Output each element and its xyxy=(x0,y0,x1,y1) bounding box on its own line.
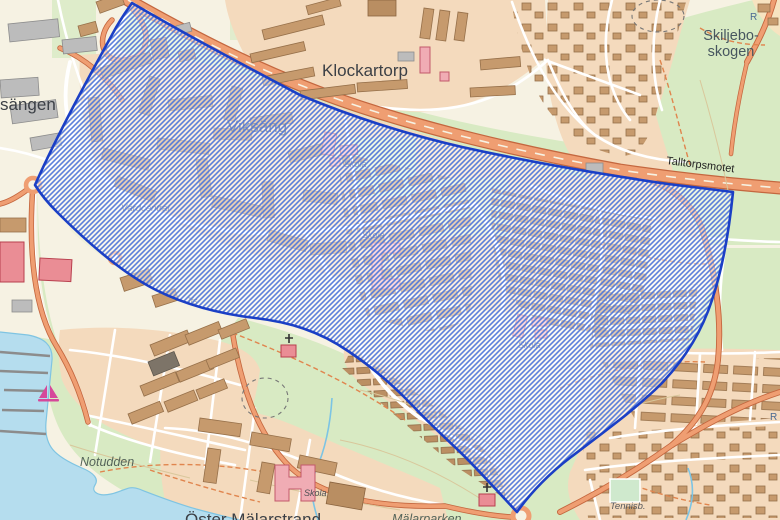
label-oster-malarstrand: Öster Mälarstrand xyxy=(185,510,321,520)
label-skiljeboskogen-line1: Skiljebo- xyxy=(703,28,759,44)
tennis-court xyxy=(610,479,640,502)
label-malarparken: Mälarparken xyxy=(392,512,462,520)
map-canvas[interactable]: Viksäng Vårdcentral Skola Skola Skola Jf… xyxy=(0,0,780,520)
label-tennis: Tennisb. xyxy=(610,501,646,512)
label-notudden: Notudden xyxy=(80,455,134,469)
label-rune-east: R xyxy=(770,412,777,423)
label-district-partial: sängen xyxy=(0,95,56,114)
label-skola-south: Skola xyxy=(304,488,327,498)
label-skiljeboskogen-line2: skogen xyxy=(708,44,755,60)
map-viewport[interactable]: Viksäng Vårdcentral Skola Skola Skola Jf… xyxy=(0,0,780,520)
label-klockartorp: Klockartorp xyxy=(322,61,408,80)
label-rune-north: R xyxy=(750,12,757,23)
